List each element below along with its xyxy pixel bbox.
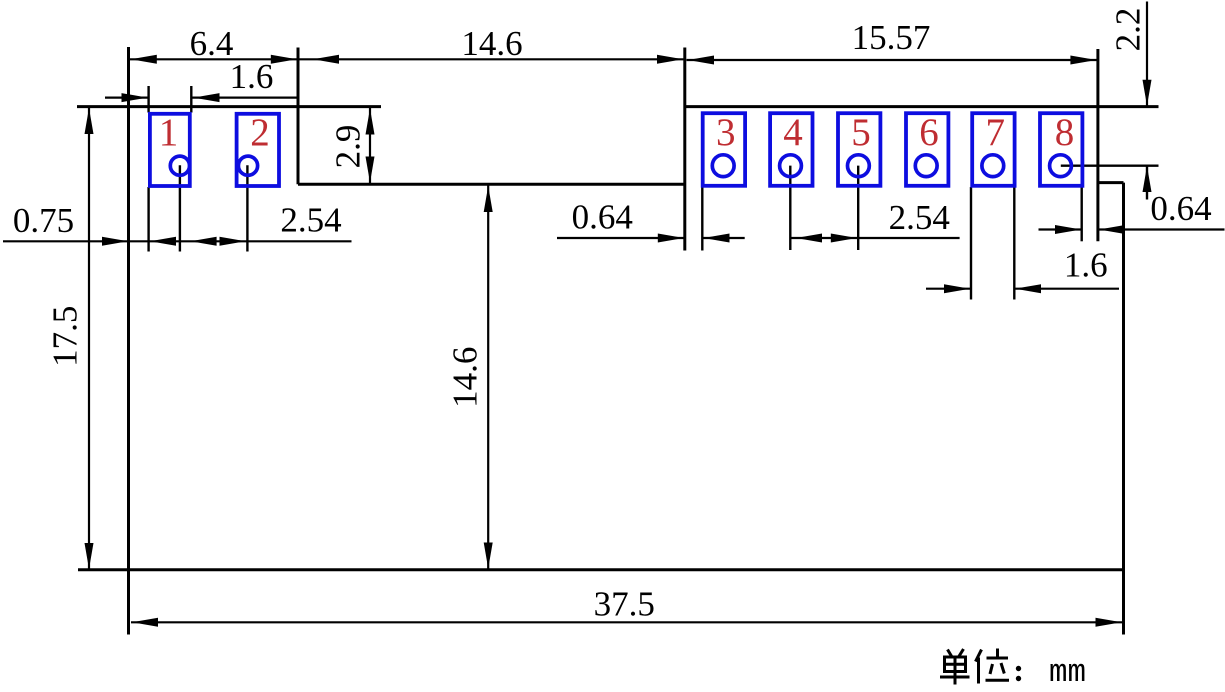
svg-text:15.57: 15.57 (852, 18, 931, 57)
svg-text:1.6: 1.6 (230, 57, 274, 96)
svg-text:14.6: 14.6 (461, 24, 522, 63)
svg-text:2: 2 (250, 111, 270, 154)
svg-text:2.9: 2.9 (329, 125, 368, 169)
svg-text:4: 4 (783, 111, 803, 154)
svg-text:0.64: 0.64 (572, 198, 633, 237)
svg-text:14.6: 14.6 (446, 347, 485, 408)
svg-text:37.5: 37.5 (594, 585, 655, 624)
svg-text:3: 3 (716, 111, 736, 154)
svg-text:2.54: 2.54 (280, 201, 341, 240)
svg-text:0.75: 0.75 (13, 201, 74, 240)
svg-text:5: 5 (851, 111, 871, 154)
svg-text:17.5: 17.5 (46, 306, 85, 367)
svg-text:7: 7 (986, 111, 1006, 154)
svg-text:6: 6 (919, 111, 939, 154)
svg-text:6.4: 6.4 (190, 24, 234, 63)
svg-text:1.6: 1.6 (1064, 246, 1108, 285)
svg-text:mm: mm (1049, 654, 1086, 691)
svg-text:2.54: 2.54 (889, 198, 950, 237)
svg-text:8: 8 (1055, 111, 1075, 154)
svg-text:1: 1 (159, 111, 179, 154)
svg-text:0.64: 0.64 (1150, 189, 1211, 228)
svg-text:2.2: 2.2 (1109, 8, 1148, 52)
